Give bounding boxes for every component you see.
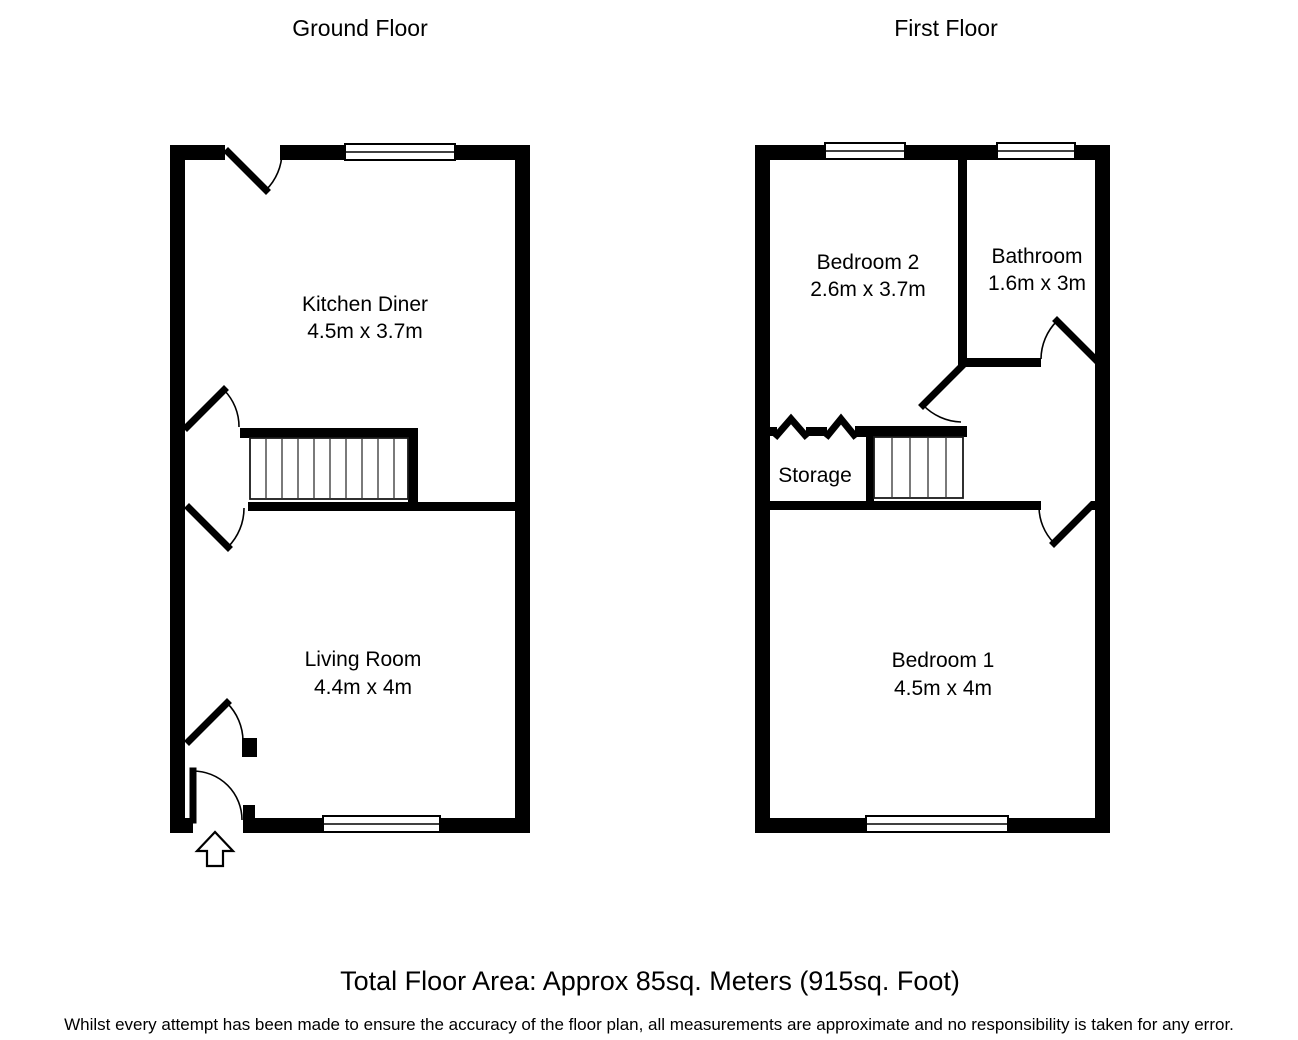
gf-stairs-end-wall xyxy=(408,428,418,510)
storage-door-chevron-icon xyxy=(777,419,805,435)
ff-landing-bed1-wall xyxy=(755,501,1041,510)
floor-plan-page: Ground Floor xyxy=(0,0,1298,1040)
entrance-arrow-icon xyxy=(197,832,233,866)
gf-staircase xyxy=(250,438,408,499)
gf-left-wall xyxy=(170,145,185,833)
first-floor-title: First Floor xyxy=(894,15,998,41)
gf-stairs-top-wall xyxy=(240,428,418,438)
ff-top-window-bathroom xyxy=(997,143,1075,159)
ff-stairs-top-wall xyxy=(855,426,967,437)
gf-hall-door xyxy=(187,390,239,427)
bathroom-dims: 1.6m x 3m xyxy=(988,272,1086,295)
gf-living-room-door xyxy=(189,508,244,547)
ff-top-window-bedroom2 xyxy=(825,143,905,159)
disclaimer-text: Whilst every attempt has been made to en… xyxy=(64,1015,1234,1034)
kitchen-diner-label: Kitchen Diner xyxy=(302,293,428,316)
footer: Total Floor Area: Approx 85sq. Meters (9… xyxy=(64,966,1234,1034)
ff-bottom-wall-left xyxy=(755,818,866,833)
ff-bed2-bath-divider xyxy=(958,160,967,366)
ff-bedroom1-door xyxy=(1039,506,1091,543)
living-room-label: Living Room xyxy=(305,648,422,671)
ff-bathroom-bottom-wall xyxy=(958,358,1041,367)
bedroom1-label: Bedroom 1 xyxy=(892,649,995,672)
living-room-dims: 4.4m x 4m xyxy=(314,676,412,699)
gf-room-divider-wall xyxy=(248,502,515,511)
gf-front-door xyxy=(193,771,242,820)
gf-bottom-wall-right xyxy=(440,818,530,833)
bedroom1-dims: 4.5m x 4m xyxy=(894,677,992,700)
ff-bottom-window-bedroom1 xyxy=(866,816,1008,832)
storage-label: Storage xyxy=(778,464,852,487)
floor-plan-drawing: Ground Floor xyxy=(0,0,1298,1040)
ff-top-wall-mid xyxy=(905,145,997,160)
bedroom2-dims: 2.6m x 3.7m xyxy=(810,278,926,301)
bedroom2-label: Bedroom 2 xyxy=(817,251,920,274)
gf-top-wall-mid xyxy=(280,145,345,160)
gf-vestibule-wall-bottom xyxy=(243,805,255,833)
ff-staircase xyxy=(874,437,963,498)
ff-bottom-wall-right xyxy=(1008,818,1110,833)
first-floor-plan: First Floor xyxy=(755,15,1110,833)
gf-vestibule-wall-stub xyxy=(242,738,257,757)
ground-floor-title: Ground Floor xyxy=(292,15,428,41)
ff-right-wall xyxy=(1095,145,1110,833)
kitchen-diner-dims: 4.5m x 3.7m xyxy=(307,320,423,343)
gf-top-window xyxy=(345,144,455,160)
ff-left-wall xyxy=(755,145,770,833)
gf-right-wall xyxy=(515,145,530,833)
bathroom-label: Bathroom xyxy=(991,245,1082,268)
ground-floor-plan: Ground Floor xyxy=(170,15,530,866)
ff-bedroom2-door xyxy=(923,367,961,422)
ff-bathroom-door xyxy=(1041,321,1095,359)
gf-vestibule-door xyxy=(189,703,243,741)
gf-bottom-window xyxy=(323,816,440,832)
gf-kitchen-door xyxy=(228,152,282,190)
ff-stairs-side-wall xyxy=(866,437,874,502)
total-floor-area-text: Total Floor Area: Approx 85sq. Meters (9… xyxy=(340,966,960,996)
storage-door-chevron-icon xyxy=(828,419,854,435)
